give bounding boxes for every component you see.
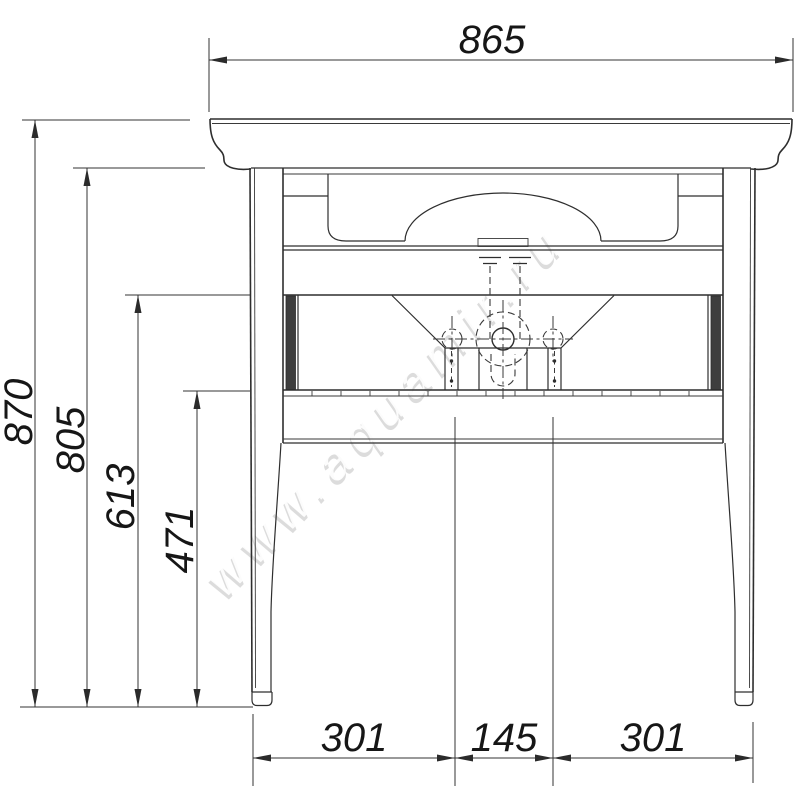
dimension-left-heights: 870 805 613 471 — [0, 120, 253, 707]
watermark: www.aquamir.ru www.aquamir.ru — [191, 210, 580, 610]
dimension-top-width: 865 — [209, 18, 793, 112]
dim-label-870: 870 — [0, 379, 41, 446]
washbasin-console-drawing: www.aquamir.ru www.aquamir.ru — [0, 0, 800, 800]
right-stile — [711, 296, 721, 390]
basin-dome — [405, 193, 601, 241]
dim-label-805: 805 — [49, 406, 93, 473]
dim-label-613: 613 — [99, 464, 143, 531]
left-leg — [250, 168, 281, 706]
washbasin-bowl — [283, 174, 723, 250]
dim-label-865: 865 — [459, 18, 526, 62]
console-outline — [210, 119, 792, 706]
technical-drawing-page: www.aquamir.ru www.aquamir.ru — [0, 0, 800, 800]
dim-label-301-left: 301 — [321, 716, 388, 760]
left-stile — [286, 296, 296, 390]
right-foot — [735, 692, 753, 706]
dim-label-471: 471 — [158, 507, 202, 574]
right-leg — [725, 168, 755, 706]
dim-label-145: 145 — [471, 716, 538, 760]
dim-label-301-right: 301 — [620, 716, 687, 760]
left-foot — [252, 692, 272, 706]
countertop — [210, 119, 792, 169]
